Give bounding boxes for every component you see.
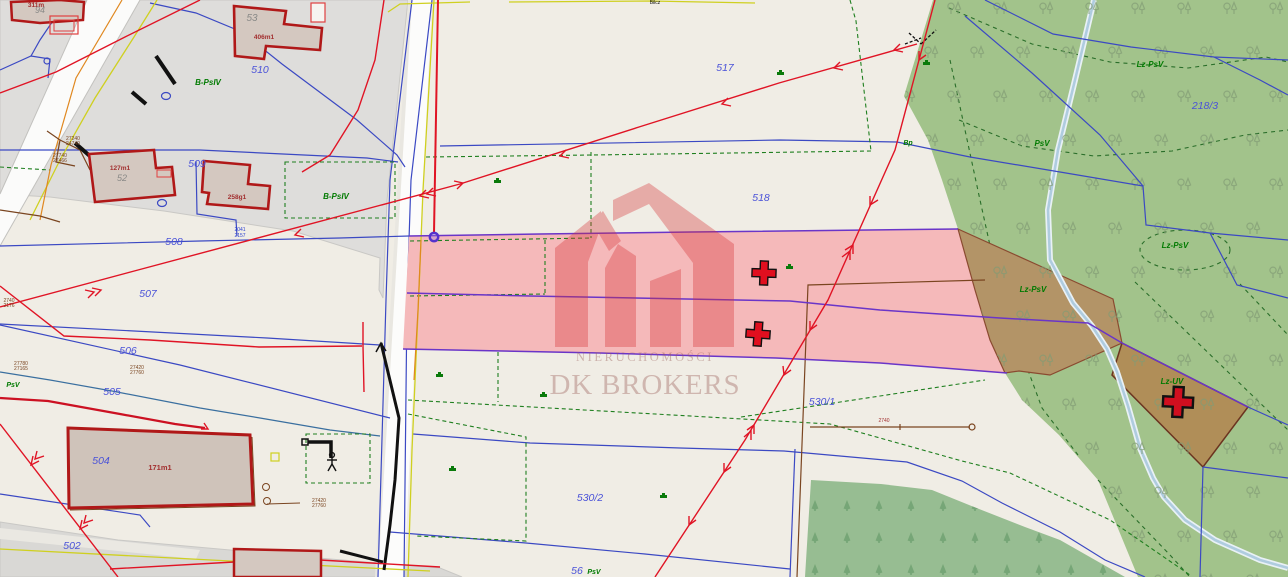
svg-text:506: 506 <box>119 345 137 357</box>
svg-text:406m1: 406m1 <box>254 34 275 41</box>
svg-text:DK BROKERS: DK BROKERS <box>550 369 741 401</box>
svg-text:127m1: 127m1 <box>110 165 131 172</box>
svg-text:27760: 27760 <box>312 503 326 509</box>
svg-text:52: 52 <box>117 173 127 183</box>
svg-text:27466: 27466 <box>53 158 67 164</box>
svg-text:502: 502 <box>63 540 81 552</box>
svg-text:2740: 2740 <box>878 418 889 424</box>
svg-text:518: 518 <box>752 192 770 204</box>
svg-text:27760: 27760 <box>130 370 144 376</box>
svg-text:Bilcz: Bilcz <box>650 0 661 6</box>
svg-text:504: 504 <box>92 455 110 467</box>
svg-text:53: 53 <box>246 13 258 24</box>
svg-text:Lz-PsV: Lz-PsV <box>1020 285 1047 294</box>
svg-text:Lz-PsV: Lz-PsV <box>1137 60 1164 69</box>
svg-text:PsV: PsV <box>587 569 602 576</box>
svg-text:Lz-UV: Lz-UV <box>1161 377 1184 386</box>
svg-text:171m1: 171m1 <box>148 463 171 472</box>
svg-text:2176: 2176 <box>3 303 14 309</box>
svg-text:508: 508 <box>165 236 183 248</box>
svg-text:505: 505 <box>103 386 121 398</box>
svg-text:56: 56 <box>571 565 583 577</box>
svg-text:258g1: 258g1 <box>228 194 247 201</box>
svg-text:517: 517 <box>716 62 735 74</box>
svg-text:PsV: PsV <box>6 382 21 389</box>
svg-text:PsV: PsV <box>1034 139 1050 148</box>
svg-text:NIERUCHOMOŚCI: NIERUCHOMOŚCI <box>576 350 714 364</box>
svg-text:Bp: Bp <box>903 140 913 147</box>
svg-text:24740: 24740 <box>66 141 80 147</box>
svg-text:B-PsIV: B-PsIV <box>195 78 221 87</box>
svg-text:27165: 27165 <box>14 366 28 372</box>
svg-text:218/3: 218/3 <box>1191 100 1218 112</box>
svg-text:Lz-PsV: Lz-PsV <box>1162 241 1189 250</box>
svg-text:B-PsIV: B-PsIV <box>323 192 349 201</box>
svg-text:530/2: 530/2 <box>577 492 603 504</box>
svg-text:510: 510 <box>251 64 269 76</box>
svg-text:507: 507 <box>139 288 158 300</box>
svg-text:530/1: 530/1 <box>809 396 835 408</box>
svg-text:94: 94 <box>35 5 45 15</box>
svg-text:509: 509 <box>188 158 206 170</box>
svg-text:2157: 2157 <box>234 233 245 239</box>
